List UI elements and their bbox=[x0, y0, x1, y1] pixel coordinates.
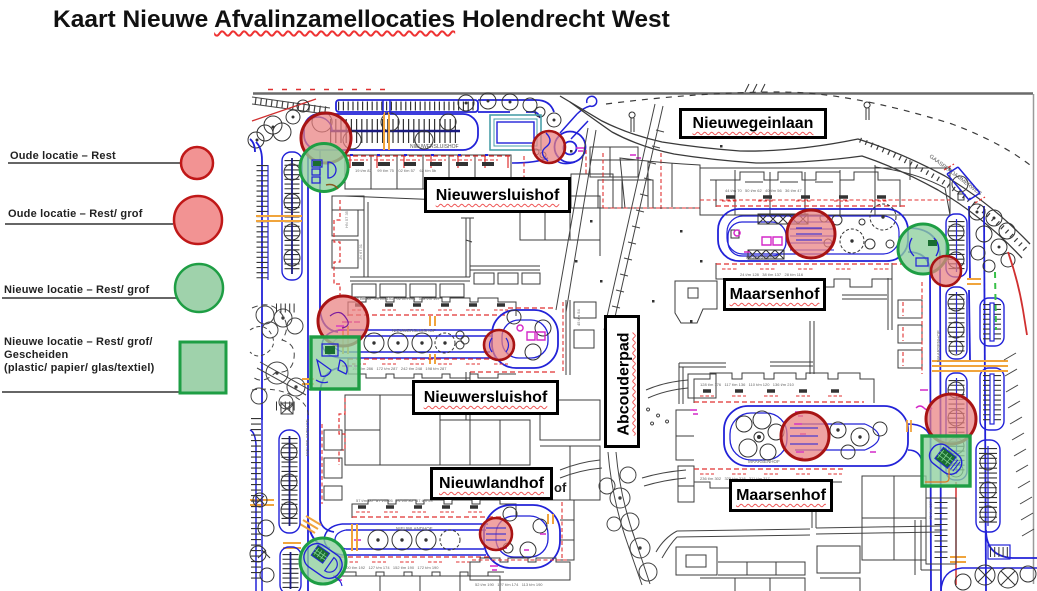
svg-text:49 t/m 527: 49 t/m 527 bbox=[928, 500, 933, 520]
svg-text:57 t/m 60 87 t/m 95 74 t/m: 57 t/m 60 87 t/m 95 74 t/m 36 57 t/m 59 bbox=[356, 498, 433, 503]
svg-text:NIEUWLANDHOF: NIEUWLANDHOF bbox=[396, 526, 433, 531]
svg-text:NIEUWERSLUISHOF: NIEUWERSLUISHOF bbox=[392, 328, 436, 333]
svg-text:JN 67 31: JN 67 31 bbox=[358, 243, 363, 260]
svg-text:44 t/m 70 50 t/m 62 40 t/m: 44 t/m 70 50 t/m 62 40 t/m 56 36 t/m 47 bbox=[725, 188, 802, 193]
svg-text:19 t/m 83 99 t/m 75 02: 19 t/m 83 99 t/m 75 02 t/m 57 62 t/m 5b bbox=[355, 168, 437, 173]
svg-text:100 t/m 192 127 t/m 174 15: 100 t/m 192 127 t/m 174 152 t/m 190 172 … bbox=[344, 565, 439, 570]
svg-text:of: of bbox=[554, 480, 567, 495]
svg-text:MAARSENHOF: MAARSENHOF bbox=[746, 255, 778, 260]
svg-text:NIEUWLANDHOF: NIEUWLANDHOF bbox=[305, 419, 310, 456]
svg-text:52 t/m 190 127 t/m 174 113: 52 t/m 190 127 t/m 174 113 t/m 190 bbox=[475, 582, 543, 587]
svg-text:24 t/m 128 38 t/m 137 28 t: 24 t/m 128 38 t/m 137 28 t/m 116 bbox=[740, 272, 804, 277]
svg-text:NIEUWERSLUISHOF: NIEUWERSLUISHOF bbox=[410, 144, 459, 150]
svg-text:178 t/m 83 24 t/m 191 02 t: 178 t/m 83 24 t/m 191 02 t/m 195 048 t/m… bbox=[352, 296, 441, 301]
svg-text:MAARSENHOF: MAARSENHOF bbox=[936, 330, 941, 362]
svg-text:45 t/m 54: 45 t/m 54 bbox=[576, 309, 581, 326]
svg-text:HN 57 35: HN 57 35 bbox=[344, 210, 349, 228]
svg-text:193 t/m 286 172 t/m 287 24: 193 t/m 286 172 t/m 287 242 t/m 248 198 … bbox=[352, 366, 447, 371]
svg-text:MAARSENHOF: MAARSENHOF bbox=[748, 459, 780, 464]
svg-text:128 t/m 176 117 t/m 136 11: 128 t/m 176 117 t/m 136 110 t/m 120 136 … bbox=[700, 382, 795, 387]
